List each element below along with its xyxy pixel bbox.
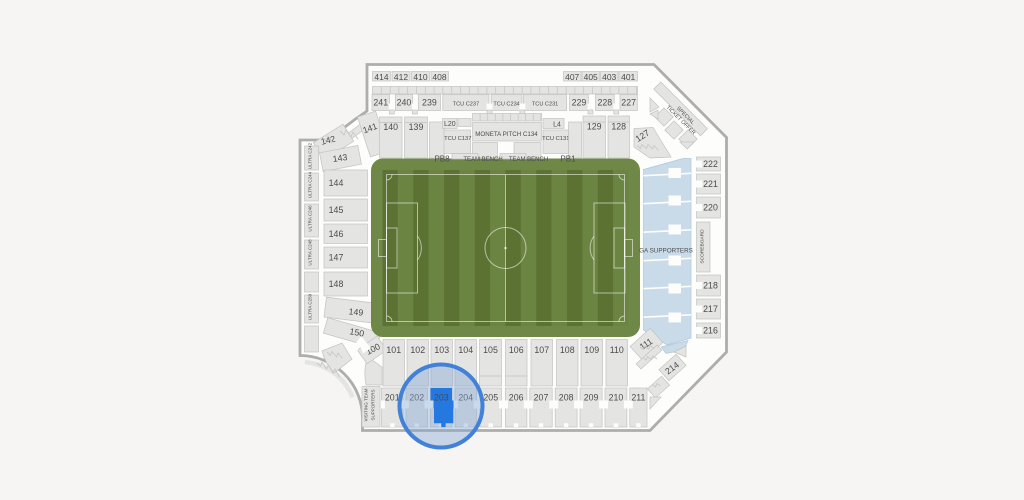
svg-text:TCU C137: TCU C137 (444, 136, 471, 142)
svg-text:ULTRA C244: ULTRA C244 (308, 171, 313, 198)
svg-text:414: 414 (374, 72, 388, 82)
svg-text:129: 129 (587, 122, 602, 132)
svg-text:410: 410 (413, 72, 427, 82)
svg-text:PB1: PB1 (560, 155, 576, 164)
svg-text:241: 241 (373, 98, 388, 108)
svg-text:128: 128 (611, 122, 626, 132)
svg-text:TEAM BENCH: TEAM BENCH (463, 157, 502, 163)
svg-text:TCU C237: TCU C237 (453, 102, 479, 108)
svg-text:205: 205 (483, 393, 498, 403)
svg-text:229: 229 (572, 98, 587, 108)
svg-text:109: 109 (584, 345, 599, 355)
svg-text:149: 149 (348, 306, 364, 317)
svg-text:148: 148 (329, 279, 344, 289)
svg-text:ULTRA C246: ULTRA C246 (308, 205, 313, 232)
svg-text:L20: L20 (444, 121, 456, 128)
svg-text:221: 221 (703, 179, 718, 189)
svg-text:239: 239 (422, 98, 437, 108)
svg-text:403: 403 (602, 72, 616, 82)
svg-text:240: 240 (397, 98, 412, 108)
svg-text:L4: L4 (553, 122, 561, 129)
svg-text:102: 102 (410, 345, 425, 355)
svg-text:106: 106 (509, 345, 524, 355)
svg-text:407: 407 (565, 72, 579, 82)
svg-text:104: 104 (458, 345, 473, 355)
svg-text:ULTRA C248: ULTRA C248 (308, 239, 313, 266)
svg-text:TEAM BENCH: TEAM BENCH (509, 157, 548, 163)
svg-text:217: 217 (703, 304, 718, 314)
svg-text:TCU C234: TCU C234 (493, 102, 519, 108)
svg-text:105: 105 (483, 345, 498, 355)
svg-text:TCU C231: TCU C231 (532, 102, 558, 108)
svg-text:412: 412 (394, 72, 408, 82)
svg-text:GA SUPPORTERS: GA SUPPORTERS (639, 248, 693, 255)
svg-text:203: 203 (434, 393, 449, 403)
svg-text:143: 143 (332, 152, 348, 164)
svg-text:SUPPORTERS: SUPPORTERS (371, 390, 376, 421)
svg-text:103: 103 (434, 345, 449, 355)
svg-text:108: 108 (560, 345, 575, 355)
svg-text:218: 218 (703, 281, 718, 291)
svg-text:110: 110 (610, 345, 624, 355)
svg-text:220: 220 (703, 203, 718, 213)
svg-text:144: 144 (329, 178, 344, 188)
svg-text:TCU C131: TCU C131 (542, 136, 569, 142)
svg-text:107: 107 (534, 345, 549, 355)
svg-text:139: 139 (409, 122, 424, 132)
svg-text:209: 209 (584, 393, 599, 403)
svg-text:145: 145 (329, 205, 344, 215)
svg-text:201: 201 (385, 393, 400, 403)
svg-text:MONETA PITCH C134: MONETA PITCH C134 (475, 131, 538, 138)
svg-text:227: 227 (621, 98, 636, 108)
svg-text:408: 408 (432, 72, 446, 82)
svg-text:146: 146 (329, 229, 344, 239)
svg-text:206: 206 (509, 393, 524, 403)
svg-text:211: 211 (631, 393, 645, 403)
svg-text:PB8: PB8 (434, 155, 450, 164)
svg-text:228: 228 (598, 98, 613, 108)
svg-text:216: 216 (703, 326, 718, 336)
svg-text:101: 101 (386, 345, 401, 355)
svg-text:140: 140 (383, 122, 398, 132)
svg-text:147: 147 (329, 253, 344, 263)
svg-text:222: 222 (703, 159, 718, 169)
svg-text:ULTRA C242: ULTRA C242 (308, 142, 313, 169)
svg-text:207: 207 (534, 393, 549, 403)
svg-text:VISITING TEAM: VISITING TEAM (364, 388, 369, 421)
svg-text:208: 208 (559, 393, 574, 403)
svg-text:SCOREBOARD: SCOREBOARD (699, 229, 705, 264)
svg-text:401: 401 (621, 72, 635, 82)
svg-text:ULTRA C250: ULTRA C250 (308, 293, 313, 320)
svg-text:405: 405 (584, 72, 598, 82)
svg-text:210: 210 (609, 393, 624, 403)
